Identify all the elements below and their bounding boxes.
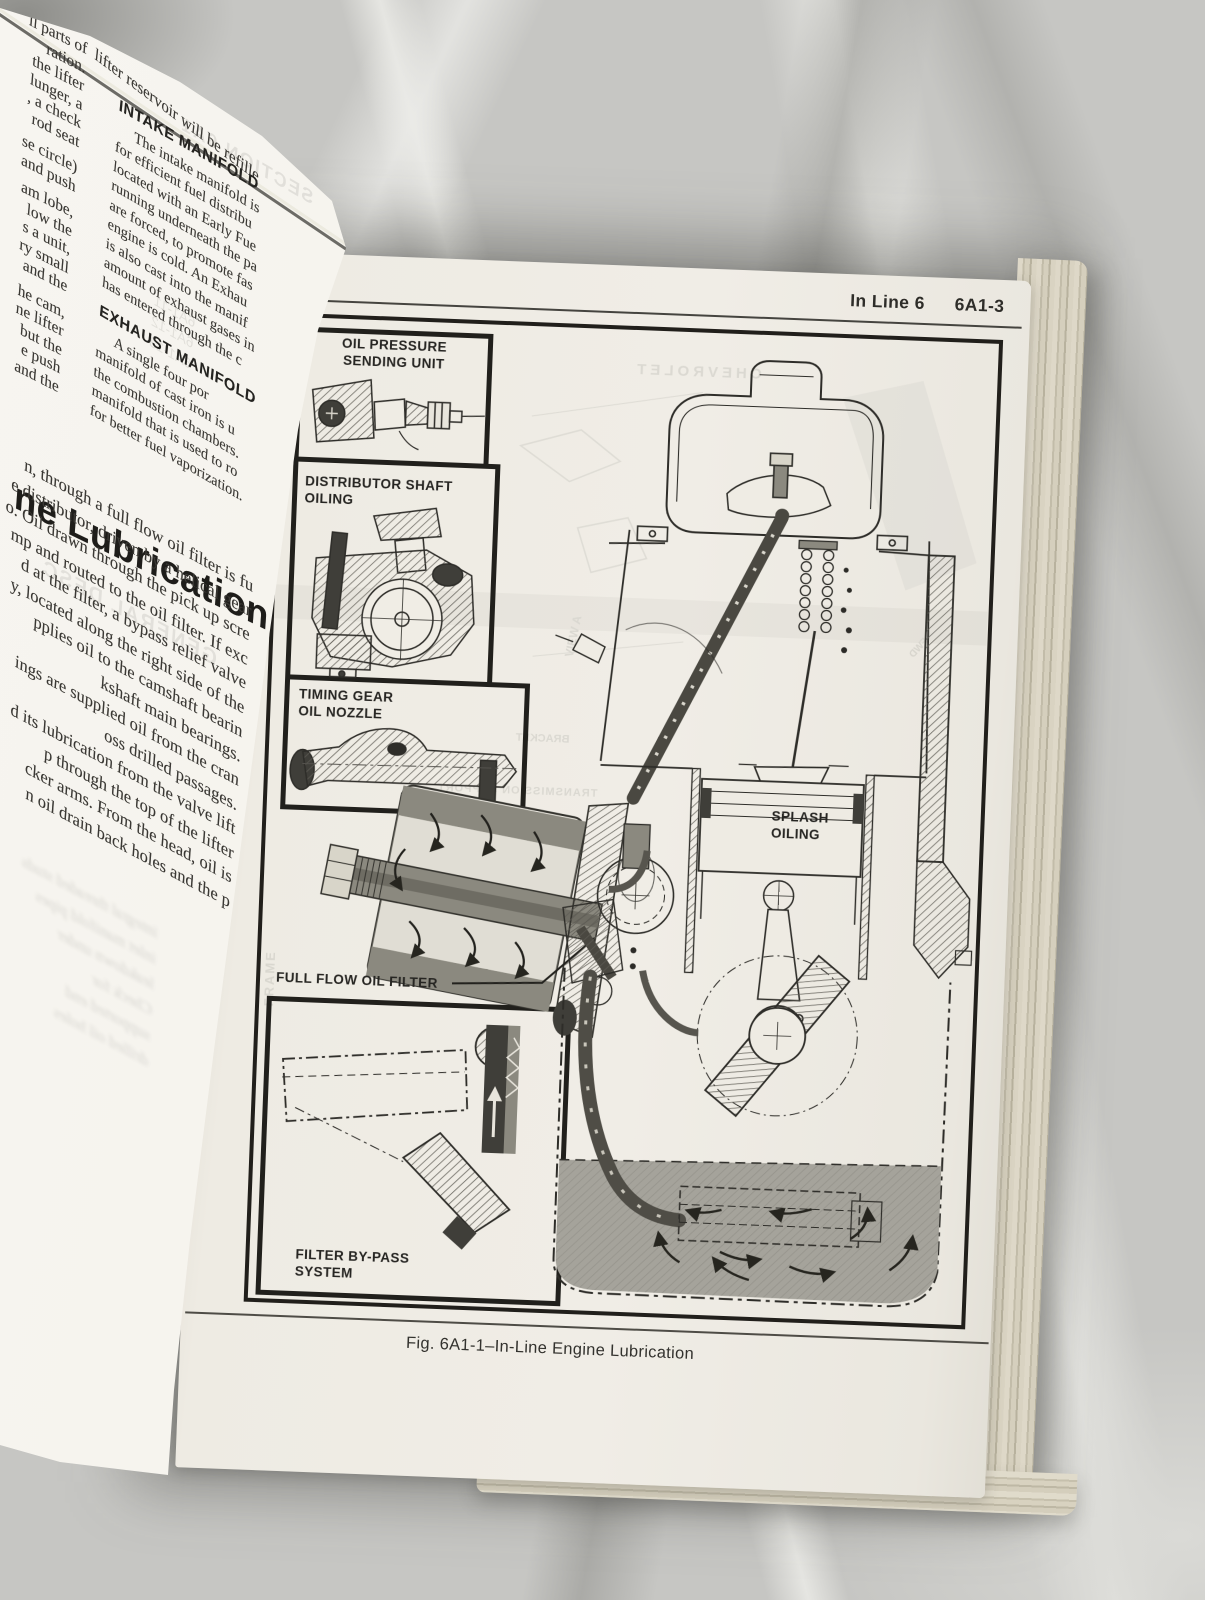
- valve-stem: [793, 630, 815, 769]
- distributor-shaft-oiling-drawing: [310, 504, 478, 682]
- figure-caption: Fig. 6A1-1–In-Line Engine Lubrication: [180, 1325, 920, 1372]
- right-page: In Line 6 6A1-3 CHEVR: [175, 250, 1031, 1498]
- left-column-fragments: ll parts ofration.the lifterlunger, a, a…: [0, 0, 88, 396]
- figure-6a1-1: CHEVROLET FRAME VIEW A TRANSMISSION SUPP…: [244, 312, 1003, 1329]
- header-page-number: 6A1-3: [954, 294, 1004, 317]
- filter-bypass-system-drawing: [276, 1017, 520, 1252]
- piston: [697, 779, 864, 925]
- label-splash-oiling: SPLASH OILING: [771, 808, 882, 846]
- label-filter-bypass-system: FILTER BY-PASS SYSTEM: [295, 1246, 476, 1287]
- pushrod: [633, 512, 782, 803]
- ghost-chevrolet: CHEVROLET: [633, 361, 762, 383]
- label-timing-gear-oil-nozzle: TIMING GEAR OIL NOZZLE: [298, 685, 449, 725]
- block-right-wall: [917, 555, 955, 862]
- engine-lubrication-diagram: CHEVROLET FRAME VIEW A TRANSMISSION SUPP…: [248, 316, 998, 1324]
- oil-pressure-sending-unit-drawing: [311, 378, 486, 453]
- page-header: In Line 6 6A1-3: [850, 290, 1005, 317]
- header-section-title: In Line 6: [850, 290, 925, 314]
- bleedthrough-blurred-text: integral threaded studsinlet manifold pi…: [11, 848, 158, 1074]
- label-oil-pressure-sending-unit: OIL PRESSURE SENDING UNIT: [326, 334, 463, 373]
